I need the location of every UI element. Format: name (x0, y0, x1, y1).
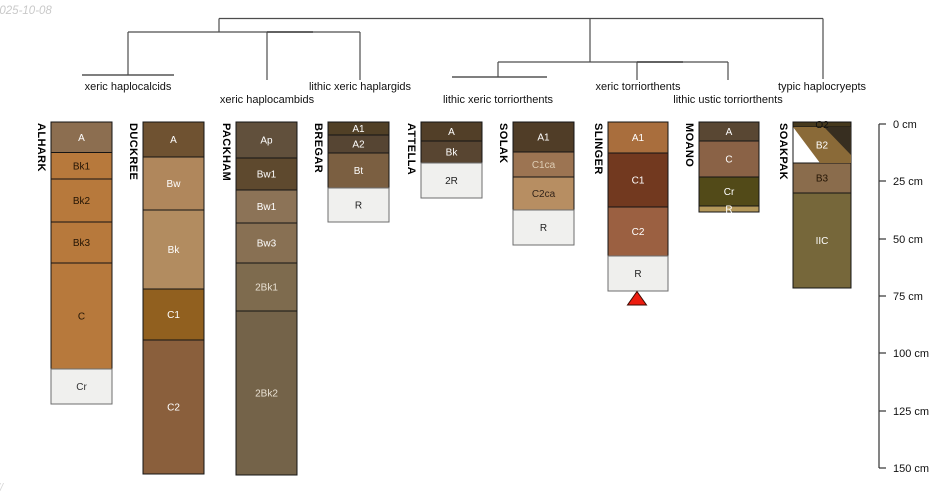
horizon-label: A1 (632, 133, 645, 144)
profile-name-label: SOLAK (497, 123, 509, 164)
horizon-label: A (448, 127, 455, 138)
horizon-label: Bk3 (73, 238, 91, 249)
horizon-label: IIC (816, 236, 829, 247)
horizon-label: Bk2 (73, 196, 91, 207)
horizon-label: C1 (632, 176, 645, 187)
horizon-label: C1 (167, 310, 180, 321)
depth-axis-tick-label: 100 cm (893, 348, 929, 360)
profile-name-label: SLINGER (592, 123, 604, 175)
horizon-label: A1 (352, 124, 365, 135)
horizon-label: A (78, 133, 85, 144)
horizon-label: Cr (724, 187, 735, 198)
horizon-label: A2 (352, 140, 365, 151)
horizon-label: C (78, 312, 85, 323)
profile-name-label: PACKHAM (220, 123, 232, 181)
depth-axis-tick-label: 75 cm (893, 291, 923, 303)
profile-column-soakpak: O2B2B3IICSOAKPAK (777, 120, 851, 288)
profile-column-alhark: ABk1Bk2Bk3CCrALHARK (35, 122, 112, 404)
dendrogram-group-label: xeric haplocalcids (85, 81, 172, 93)
profile-column-slinger: A1C1C2RSLINGER (592, 122, 668, 291)
horizon-label: 2Bk2 (255, 389, 278, 400)
horizon-label: A (726, 127, 733, 138)
horizon-label: Bw (167, 179, 182, 190)
profile-column-duckree: ABwBkC1C2DUCKREE (127, 122, 204, 474)
horizon-label: C2 (167, 403, 180, 414)
horizon-label: Bw3 (257, 239, 277, 250)
soil-taxonomy-dendrogram-figure: 2025-10-08 // xeric haplocalcidsxeric ha… (0, 0, 950, 500)
horizon-label: Bt (354, 166, 364, 177)
horizon-label: Cr (76, 382, 87, 393)
horizon-label: Bk (446, 148, 459, 159)
horizon-label: C (725, 155, 732, 166)
profile-column-attella: ABk2RATTELLA (405, 122, 482, 198)
profile-name-label: MOANO (683, 123, 695, 167)
depth-axis-tick-label: 50 cm (893, 234, 923, 246)
figure-canvas: xeric haplocalcidsxeric haplocambidslith… (0, 0, 950, 500)
horizon-label: C1ca (532, 160, 556, 171)
horizon-label: 2R (445, 176, 458, 187)
horizon-label: Ap (260, 136, 273, 147)
horizon-label: 2Bk1 (255, 283, 278, 294)
horizon-label: R (634, 269, 641, 280)
depth-axis-tick-label: 25 cm (893, 176, 923, 188)
horizon-label: Bk1 (73, 161, 91, 172)
dendrogram-group-label: xeric haplocambids (220, 94, 315, 106)
profile-name-label: BREGAR (312, 123, 324, 173)
horizon-label: R (725, 205, 732, 216)
horizon-label: B3 (816, 174, 829, 185)
dendrogram-group-label: xeric torriorthents (596, 81, 681, 93)
horizon-label: A (170, 135, 177, 146)
depth-axis-tick-label: 150 cm (893, 463, 929, 475)
horizon-label: Bw1 (257, 170, 277, 181)
profile-column-packham: ApBw1Bw1Bw32Bk12Bk2PACKHAM (220, 122, 297, 475)
horizon-label: R (355, 201, 362, 212)
horizon-label: O2 (815, 120, 829, 131)
horizon-label: R (540, 223, 547, 234)
profile-name-label: ATTELLA (405, 123, 417, 175)
horizon-label: C2 (632, 227, 645, 238)
profile-column-solak: A1C1caC2caRSOLAK (497, 122, 574, 245)
profile-name-label: SOAKPAK (777, 123, 789, 180)
dendrogram-group-label: lithic ustic torriorthents (673, 94, 783, 106)
dendrogram-group-label: lithic xeric torriorthents (443, 94, 554, 106)
depth-axis-tick-label: 0 cm (893, 119, 917, 131)
profile-column-moano: ACCrRMOANO (683, 122, 759, 216)
horizon-label: Bk (168, 245, 181, 256)
horizon-label: C2ca (532, 189, 556, 200)
profile-name-label: ALHARK (35, 123, 47, 172)
horizon-label: Bw1 (257, 202, 277, 213)
profile-column-bregar: A1A2BtRBREGAR (312, 122, 389, 222)
dendrogram-group-label: typic haplocryepts (778, 81, 867, 93)
red-triangle-marker (628, 292, 647, 306)
depth-axis-tick-label: 125 cm (893, 406, 929, 418)
profile-name-label: DUCKREE (127, 123, 139, 180)
horizon-label: A1 (537, 133, 550, 144)
dendrogram-group-label: lithic xeric haplargids (309, 81, 412, 93)
horizon-label: B2 (816, 141, 829, 152)
